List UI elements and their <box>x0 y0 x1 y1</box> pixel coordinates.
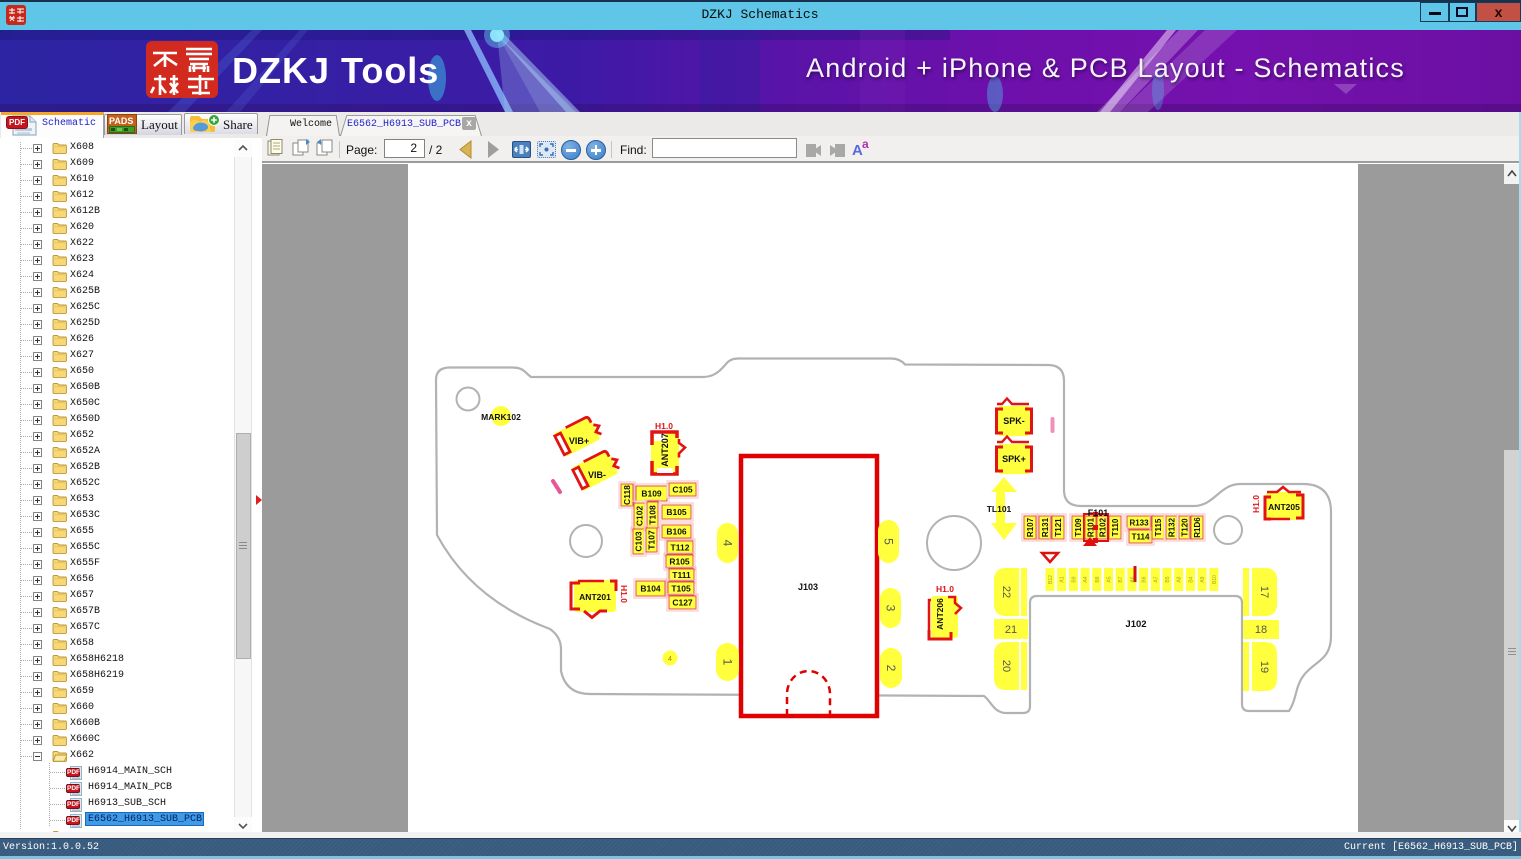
svg-text:B9: B9 <box>1071 576 1077 582</box>
svg-text:21: 21 <box>1005 624 1017 636</box>
svg-text:T120: T120 <box>1181 518 1190 537</box>
svg-text:F101: F101 <box>1088 508 1109 518</box>
svg-text:H1.0: H1.0 <box>936 584 954 594</box>
svg-text:SPK+: SPK+ <box>1002 454 1026 464</box>
svg-text:T111: T111 <box>672 570 691 580</box>
svg-text:R133: R133 <box>1129 519 1149 528</box>
svg-text:VIB-: VIB- <box>588 470 606 480</box>
svg-text:R107: R107 <box>1026 517 1035 537</box>
svg-text:H1.0: H1.0 <box>1251 495 1261 513</box>
svg-text:ANT201: ANT201 <box>579 592 611 602</box>
svg-text:R131: R131 <box>1041 517 1050 537</box>
svg-text:B8: B8 <box>1095 576 1101 582</box>
svg-text:TL101: TL101 <box>987 504 1012 514</box>
svg-text:B6: B6 <box>1142 576 1148 582</box>
svg-text:B5: B5 <box>1165 576 1171 582</box>
svg-text:B4: B4 <box>1188 576 1194 582</box>
svg-text:A4: A4 <box>1083 576 1089 582</box>
svg-text:R102: R102 <box>1099 517 1108 537</box>
svg-text:T114: T114 <box>1132 533 1150 542</box>
svg-text:3: 3 <box>884 605 898 612</box>
svg-text:20: 20 <box>1000 660 1012 672</box>
svg-text:R105: R105 <box>669 557 690 567</box>
svg-text:T107: T107 <box>647 530 657 550</box>
svg-text:T121: T121 <box>1054 518 1063 537</box>
svg-text:22: 22 <box>1000 586 1012 598</box>
svg-text:T108: T108 <box>648 505 658 525</box>
svg-text:1: 1 <box>721 659 735 666</box>
svg-text:MARK102: MARK102 <box>481 412 521 422</box>
svg-text:B104: B104 <box>640 584 661 594</box>
svg-text:B109: B109 <box>641 489 662 499</box>
svg-text:A1: A1 <box>1060 576 1066 582</box>
svg-text:19: 19 <box>1258 661 1270 673</box>
svg-text:B105: B105 <box>666 507 687 517</box>
svg-text:4: 4 <box>721 540 735 547</box>
svg-text:T109: T109 <box>1074 518 1083 537</box>
svg-text:18: 18 <box>1255 624 1267 636</box>
svg-text:ANT205: ANT205 <box>1268 502 1300 512</box>
svg-text:T115: T115 <box>1154 518 1163 536</box>
svg-text:C118: C118 <box>622 485 632 505</box>
svg-text:C105: C105 <box>672 485 693 495</box>
svg-text:B12: B12 <box>1048 575 1054 584</box>
svg-text:T112: T112 <box>671 543 690 553</box>
svg-text:R132: R132 <box>1168 517 1177 537</box>
svg-text:T105: T105 <box>671 584 691 594</box>
svg-text:J103: J103 <box>798 582 818 592</box>
svg-text:C127: C127 <box>672 598 693 608</box>
svg-text:SPK-: SPK- <box>1003 416 1025 426</box>
svg-text:H1.0: H1.0 <box>655 421 673 431</box>
svg-text:R1D6: R1D6 <box>1193 517 1202 538</box>
svg-text:B10: B10 <box>1212 575 1218 584</box>
svg-text:2: 2 <box>884 665 898 672</box>
svg-text:A8: A8 <box>1177 576 1183 582</box>
svg-text:J102: J102 <box>1125 619 1146 630</box>
svg-text:17: 17 <box>1258 586 1270 598</box>
svg-text:T110: T110 <box>1111 518 1120 536</box>
svg-text:A9: A9 <box>1200 576 1206 582</box>
svg-text:ANT206: ANT206 <box>935 598 945 630</box>
svg-text:A5: A5 <box>1107 576 1113 582</box>
svg-text:ANT207: ANT207 <box>660 433 670 467</box>
svg-text:5: 5 <box>882 538 896 545</box>
svg-text:4: 4 <box>668 656 672 663</box>
svg-text:H1.0: H1.0 <box>619 585 629 603</box>
svg-text:VIB+: VIB+ <box>569 436 589 446</box>
svg-text:C103: C103 <box>634 531 644 552</box>
svg-text:A7: A7 <box>1153 576 1159 582</box>
svg-text:B106: B106 <box>666 527 687 537</box>
svg-text:B7: B7 <box>1118 576 1124 582</box>
svg-text:C102: C102 <box>635 506 645 527</box>
